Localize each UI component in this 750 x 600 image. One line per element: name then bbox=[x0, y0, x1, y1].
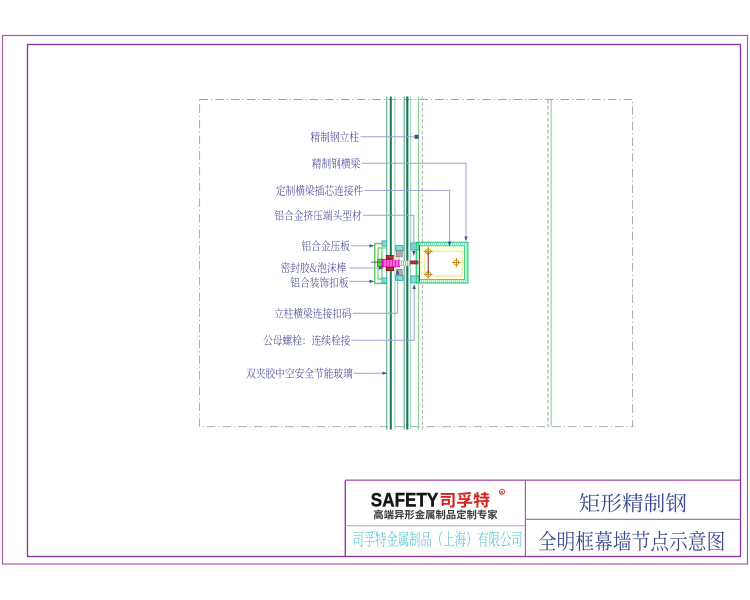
svg-text:SAFETY: SAFETY bbox=[371, 489, 439, 511]
svg-text:R: R bbox=[500, 490, 504, 495]
